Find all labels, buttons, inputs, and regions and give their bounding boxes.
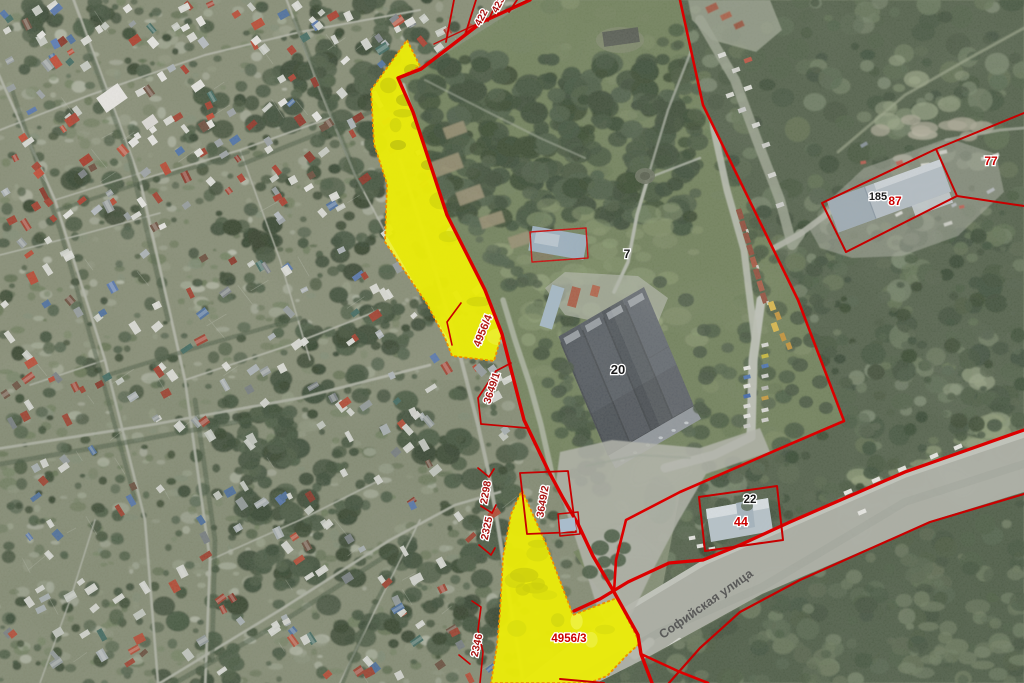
svg-text:44: 44 xyxy=(734,515,748,529)
svg-text:87: 87 xyxy=(888,194,902,208)
svg-text:77: 77 xyxy=(984,154,998,168)
svg-text:22: 22 xyxy=(744,494,757,506)
svg-text:185: 185 xyxy=(869,191,887,203)
svg-text:20: 20 xyxy=(611,362,625,377)
svg-text:7: 7 xyxy=(624,247,631,261)
svg-text:4956/3: 4956/3 xyxy=(551,633,586,645)
